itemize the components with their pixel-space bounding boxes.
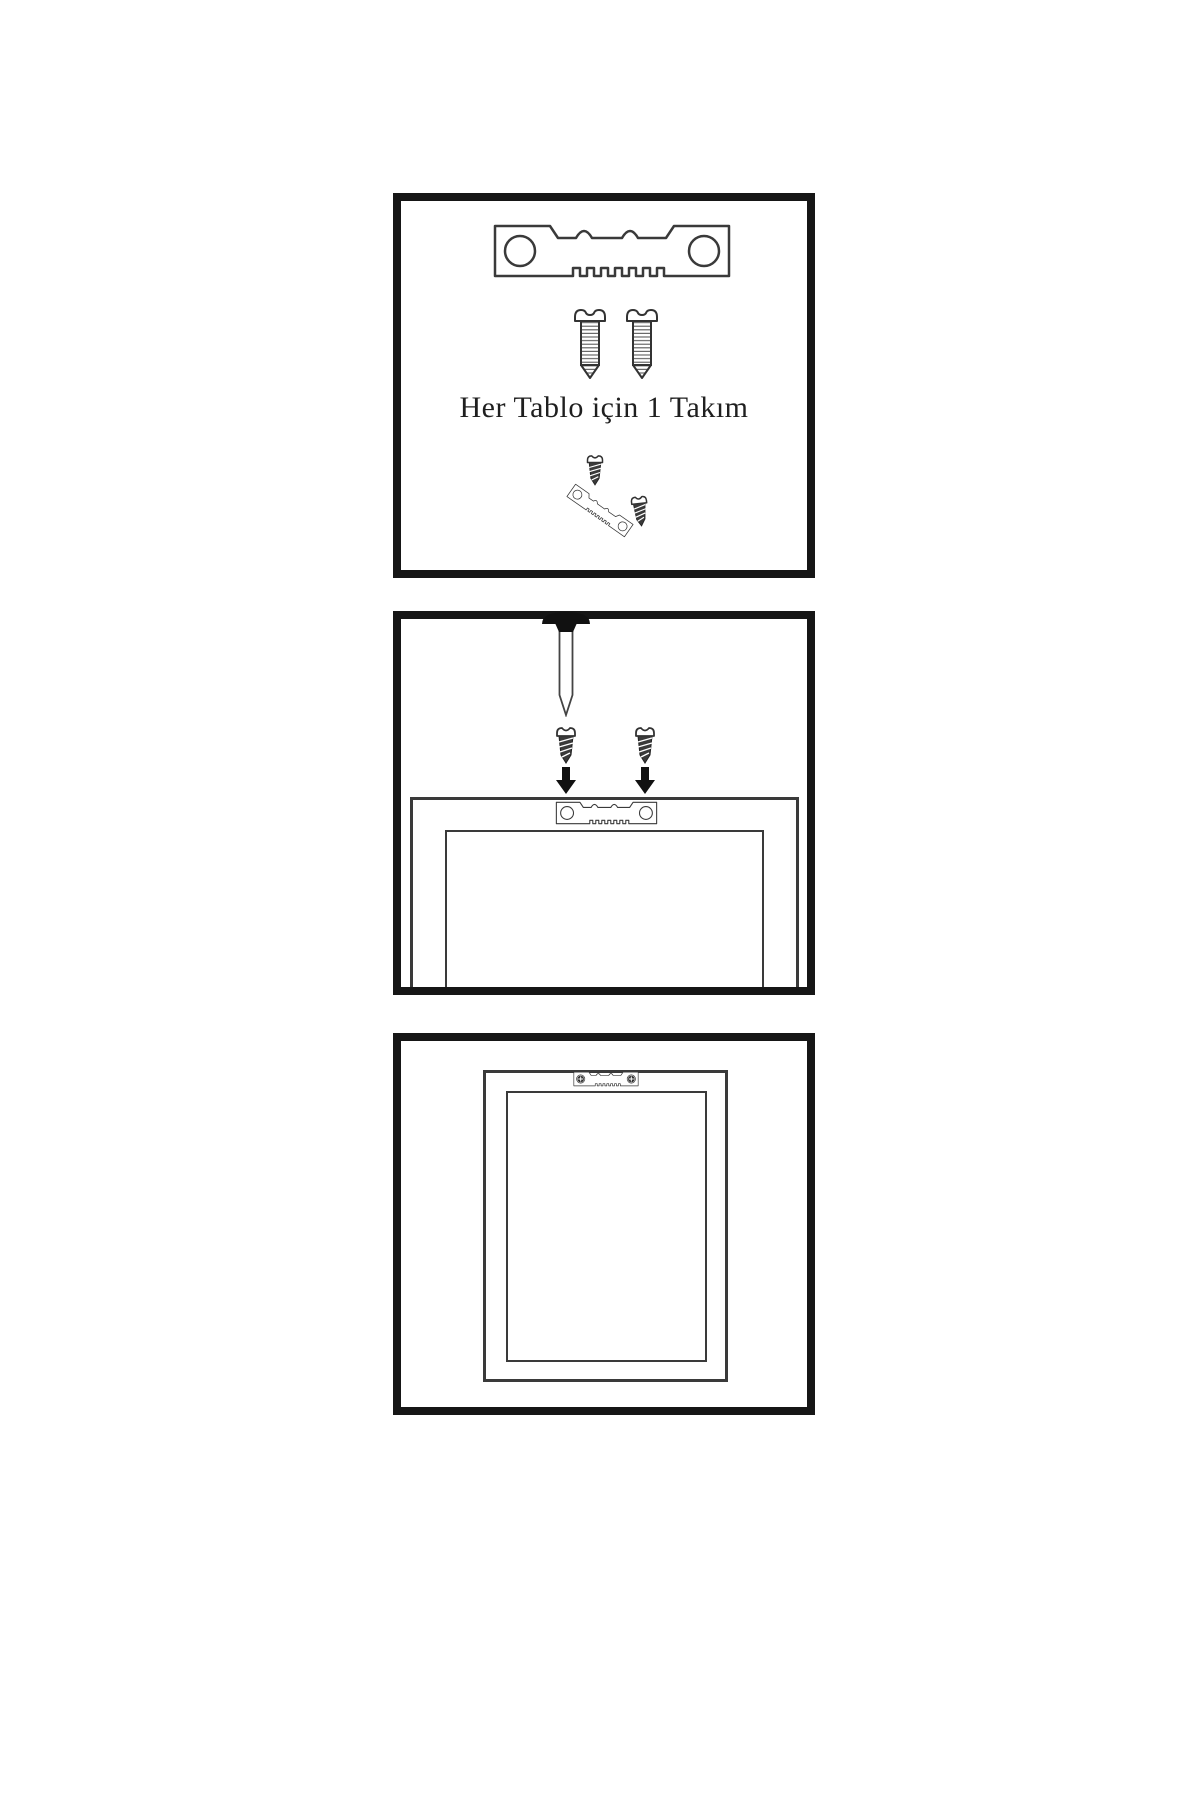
sawtooth-hanger-icon: [492, 223, 732, 279]
kit-caption: Her Tablo için 1 Takım: [401, 391, 807, 425]
screw-icon: [573, 307, 607, 381]
brand-logo: ENK WALL ART: [0, 1480, 1200, 1680]
wall-nail-icon: [540, 611, 592, 717]
frame-clip-region: [401, 619, 807, 987]
instruction-sheet: Her Tablo için 1 Takım: [0, 0, 1200, 1800]
screw-icon: [625, 307, 659, 381]
dark-screw-icon: [633, 725, 657, 765]
arrow-down-icon: [634, 767, 656, 795]
sawtooth-hanger-screwed-icon: [573, 1071, 639, 1087]
step-panel-mounting: [393, 611, 815, 995]
picture-frame-inner: [506, 1091, 707, 1362]
step-panel-hung-frame: [393, 1033, 815, 1415]
sawtooth-hanger-icon: [555, 801, 658, 825]
step-panel-hardware-kit: Her Tablo için 1 Takım: [393, 193, 815, 578]
picture-frame-inner: [445, 830, 764, 987]
dark-screw-icon: [585, 453, 605, 487]
tilted-sawtooth-hanger-icon: [566, 483, 635, 538]
arrow-down-icon: [555, 767, 577, 795]
dark-screw-icon: [554, 725, 578, 765]
dark-screw-icon: [628, 493, 651, 529]
